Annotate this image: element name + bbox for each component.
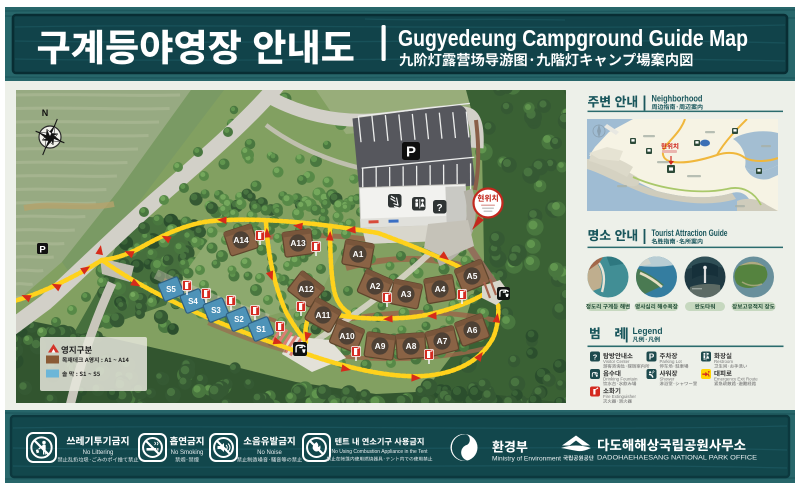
svg-text:A13: A13 xyxy=(290,238,306,248)
svg-text:No Littering: No Littering xyxy=(83,450,114,456)
svg-text:S2: S2 xyxy=(234,315,244,324)
svg-text:A2: A2 xyxy=(370,281,381,291)
svg-text:P: P xyxy=(406,144,416,161)
svg-text:A14: A14 xyxy=(233,235,249,245)
svg-text:S3: S3 xyxy=(211,306,221,315)
svg-text:P: P xyxy=(39,244,46,255)
svg-text:Drinking Fountain: Drinking Fountain xyxy=(603,377,638,382)
svg-text:A10: A10 xyxy=(339,331,355,341)
svg-text:No Smoking: No Smoking xyxy=(171,450,204,456)
svg-text:S1: S1 xyxy=(256,325,266,334)
svg-text:DADOHAEHAESANG NATIONAL PARK O: DADOHAEHAESANG NATIONAL PARK OFFICE xyxy=(597,455,757,462)
svg-text:?: ? xyxy=(437,203,443,214)
svg-text:Legend: Legend xyxy=(633,326,663,336)
svg-text:A4: A4 xyxy=(435,284,446,294)
svg-text:Fire Extinguisher: Fire Extinguisher xyxy=(603,394,636,399)
svg-text:Visitor Center: Visitor Center xyxy=(603,359,630,364)
svg-text:A8: A8 xyxy=(406,341,417,351)
svg-text:S4: S4 xyxy=(188,297,198,306)
svg-text:A3: A3 xyxy=(401,289,412,299)
svg-text:Parking Lot: Parking Lot xyxy=(660,359,683,364)
svg-text:S5: S5 xyxy=(166,285,176,294)
svg-text:No Noise: No Noise xyxy=(257,450,282,456)
svg-text:Ministry of Environment: Ministry of Environment xyxy=(492,456,561,463)
svg-text:Emergency Exit Route: Emergency Exit Route xyxy=(714,377,758,382)
svg-text:Gugyedeung Campground Guide Ma: Gugyedeung Campground Guide Map xyxy=(398,25,748,51)
svg-text:Neighborhood: Neighborhood xyxy=(652,94,703,104)
svg-text:A6: A6 xyxy=(467,325,478,335)
svg-text:Shower: Shower xyxy=(660,377,675,382)
svg-text:A5: A5 xyxy=(467,271,478,281)
svg-text:?: ? xyxy=(593,352,598,361)
svg-text:P: P xyxy=(649,352,655,361)
svg-text:A7: A7 xyxy=(437,336,448,346)
svg-text:A9: A9 xyxy=(375,341,386,351)
svg-text:No Using Combustion Appliance: No Using Combustion Appliance in the Ten… xyxy=(331,449,428,455)
svg-text:Restroom: Restroom xyxy=(714,359,733,364)
svg-text:A12: A12 xyxy=(298,284,314,294)
svg-text:N: N xyxy=(42,108,49,118)
svg-text:Tourist Attraction Guide: Tourist Attraction Guide xyxy=(652,228,728,238)
svg-text:A1: A1 xyxy=(353,249,364,259)
svg-text:A11: A11 xyxy=(316,310,331,320)
